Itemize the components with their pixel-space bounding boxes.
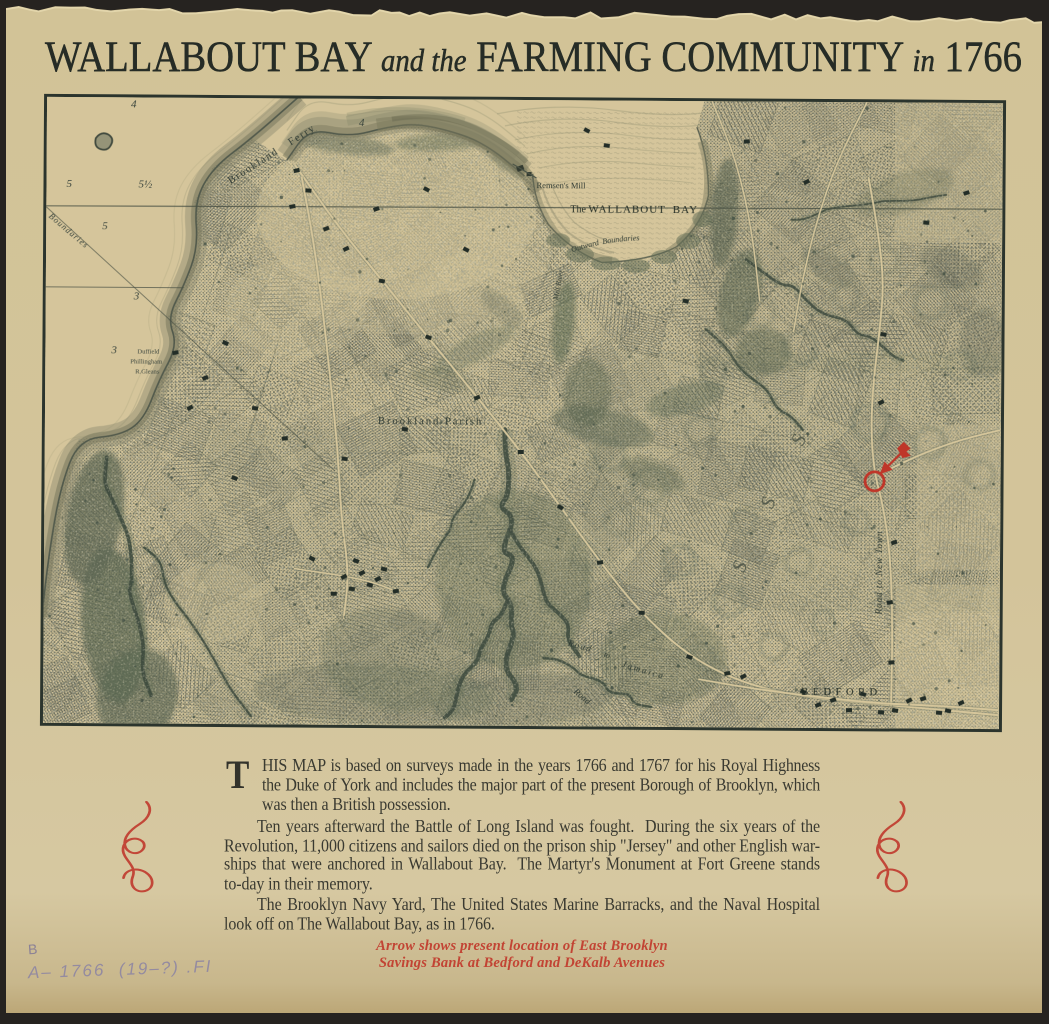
svg-text:The WALLABOUT BAY: The WALLABOUT BAY — [570, 203, 698, 216]
svg-text:4: 4 — [359, 117, 365, 129]
svg-text:Brookland Parish: Brookland Parish — [378, 416, 483, 428]
svg-text:Remsen's Mill: Remsen's Mill — [536, 180, 586, 190]
